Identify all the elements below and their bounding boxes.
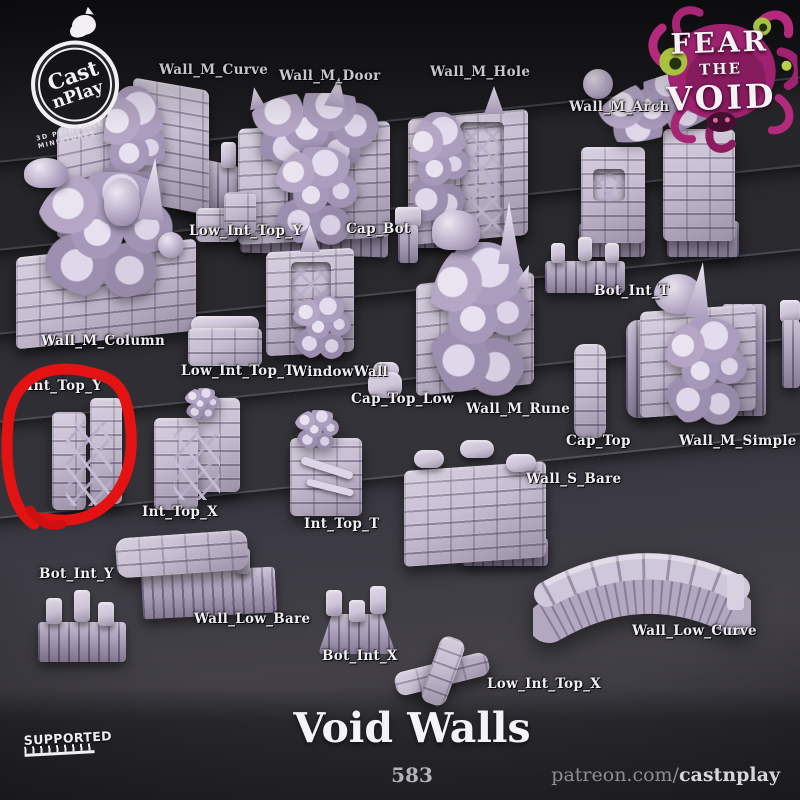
label-wall-low-bare: Wall_Low_Bare xyxy=(194,611,310,627)
brick-panel xyxy=(404,461,546,567)
label-windowwall: WindowWall xyxy=(292,364,388,380)
spike xyxy=(246,86,266,110)
promo-sheet: Wall_M_Curve Wall_M_Door Wall_M_Hole Wal… xyxy=(0,0,800,800)
set-number: 583 xyxy=(391,763,433,787)
crenel-block xyxy=(578,237,592,261)
patreon-url-handle: castnplay xyxy=(679,764,780,786)
supported-badge: SUPPORTED xyxy=(23,729,94,756)
mushroom-blob xyxy=(583,69,613,99)
void-growth xyxy=(292,296,354,360)
label-wall-s-bare: Wall_S_Bare xyxy=(526,471,621,487)
void-growth xyxy=(184,388,222,420)
skull-growth xyxy=(294,410,342,450)
mini-wall-s-bare xyxy=(404,448,549,568)
label-cap-top-low: Cap_Top_Low xyxy=(351,391,454,407)
cap-block xyxy=(414,450,444,468)
mini-wall-m-rune xyxy=(416,230,542,412)
label-cap-bot: Cap_Bot xyxy=(346,221,410,237)
stacked-post xyxy=(574,344,606,438)
void-growth xyxy=(664,318,750,428)
crenel-block xyxy=(605,243,619,263)
bomb-mascot-icon xyxy=(70,13,98,38)
mini-low-int-top-x xyxy=(394,636,494,708)
mini-int-top-t xyxy=(286,422,366,518)
label-low-int-top-x: Low_Int_Top_X xyxy=(487,676,601,692)
patreon-url: patreon.com/castnplay xyxy=(551,764,780,786)
fear-text-line3: VOID xyxy=(644,75,799,119)
crenel-block xyxy=(349,600,365,622)
cap-block xyxy=(506,454,536,472)
fan-mushroom xyxy=(432,210,480,250)
brick-block xyxy=(188,328,262,366)
crenel-block xyxy=(74,590,90,622)
label-wall-m-column: Wall_M_Column xyxy=(41,333,165,349)
patreon-url-prefix: patreon.com/ xyxy=(551,764,679,786)
mini-int-top-x xyxy=(142,398,250,510)
mini-low-int-top-t xyxy=(188,316,264,368)
mini-wall-low-bare xyxy=(116,532,278,620)
mini-windowwall xyxy=(266,238,356,360)
mini-wall-m-simple xyxy=(626,276,771,431)
spike xyxy=(484,86,504,114)
mini-cap-top xyxy=(572,344,610,440)
label-bot-int-y: Bot_Int_Y xyxy=(39,566,114,582)
label-wall-m-hole: Wall_M_Hole xyxy=(430,64,530,80)
curved-wall-graphic xyxy=(533,530,751,664)
crenel-block xyxy=(326,590,342,616)
mini-wall-low-curve xyxy=(533,530,751,664)
growth-blob xyxy=(158,232,184,258)
web-tendrils xyxy=(66,422,112,506)
label-int-top-y: Int_Top_Y xyxy=(27,378,102,394)
label-low-int-top-t: Low_Int_Top_T xyxy=(181,363,295,379)
label-int-top-t: Int_Top_T xyxy=(304,516,380,532)
crenel-block xyxy=(370,586,386,614)
post-shaft xyxy=(782,320,800,388)
fear-text-line1: FEAR xyxy=(642,23,797,61)
mini-wall-m-column xyxy=(8,172,208,344)
crenel-block xyxy=(46,598,62,624)
label-wall-m-door: Wall_M_Door xyxy=(279,68,381,84)
label-wall-m-simple: Wall_M_Simple xyxy=(679,433,797,449)
web-tendrils xyxy=(174,428,220,500)
label-bot-int-t: Bot_Int_T xyxy=(594,283,669,299)
castnplay-logo: Cast nPlay 3D PRINTABLE MINIATURES xyxy=(4,0,147,142)
label-wall-m-curve: Wall_M_Curve xyxy=(159,62,268,78)
set-title: Void Walls xyxy=(293,704,530,752)
label-bot-int-x: Bot_Int_X xyxy=(322,648,398,664)
label-int-top-x: Int_Top_X xyxy=(142,504,218,520)
corner-post xyxy=(221,142,236,168)
egg-dome xyxy=(104,178,140,226)
label-cap-top: Cap_Top xyxy=(566,433,631,449)
void-growth xyxy=(430,242,532,402)
mushroom-cap xyxy=(24,158,68,188)
label-low-int-top-y: Low_Int_Top_Y xyxy=(189,223,302,239)
mini-int-top-y xyxy=(52,396,124,514)
plank-base xyxy=(38,622,126,662)
edge-piece-post xyxy=(780,300,800,390)
label-wall-low-curve: Wall_Low_Curve xyxy=(632,623,757,639)
lattice-window xyxy=(593,169,625,201)
crenel-block xyxy=(98,602,114,626)
crenel-block xyxy=(551,243,565,263)
cap-block xyxy=(780,300,800,322)
fear-the-void-logo: FEAR THE VOID xyxy=(641,0,800,161)
cap-block xyxy=(460,440,494,458)
label-wall-m-rune: Wall_M_Rune xyxy=(466,401,570,417)
mini-bot-int-x xyxy=(316,586,398,656)
